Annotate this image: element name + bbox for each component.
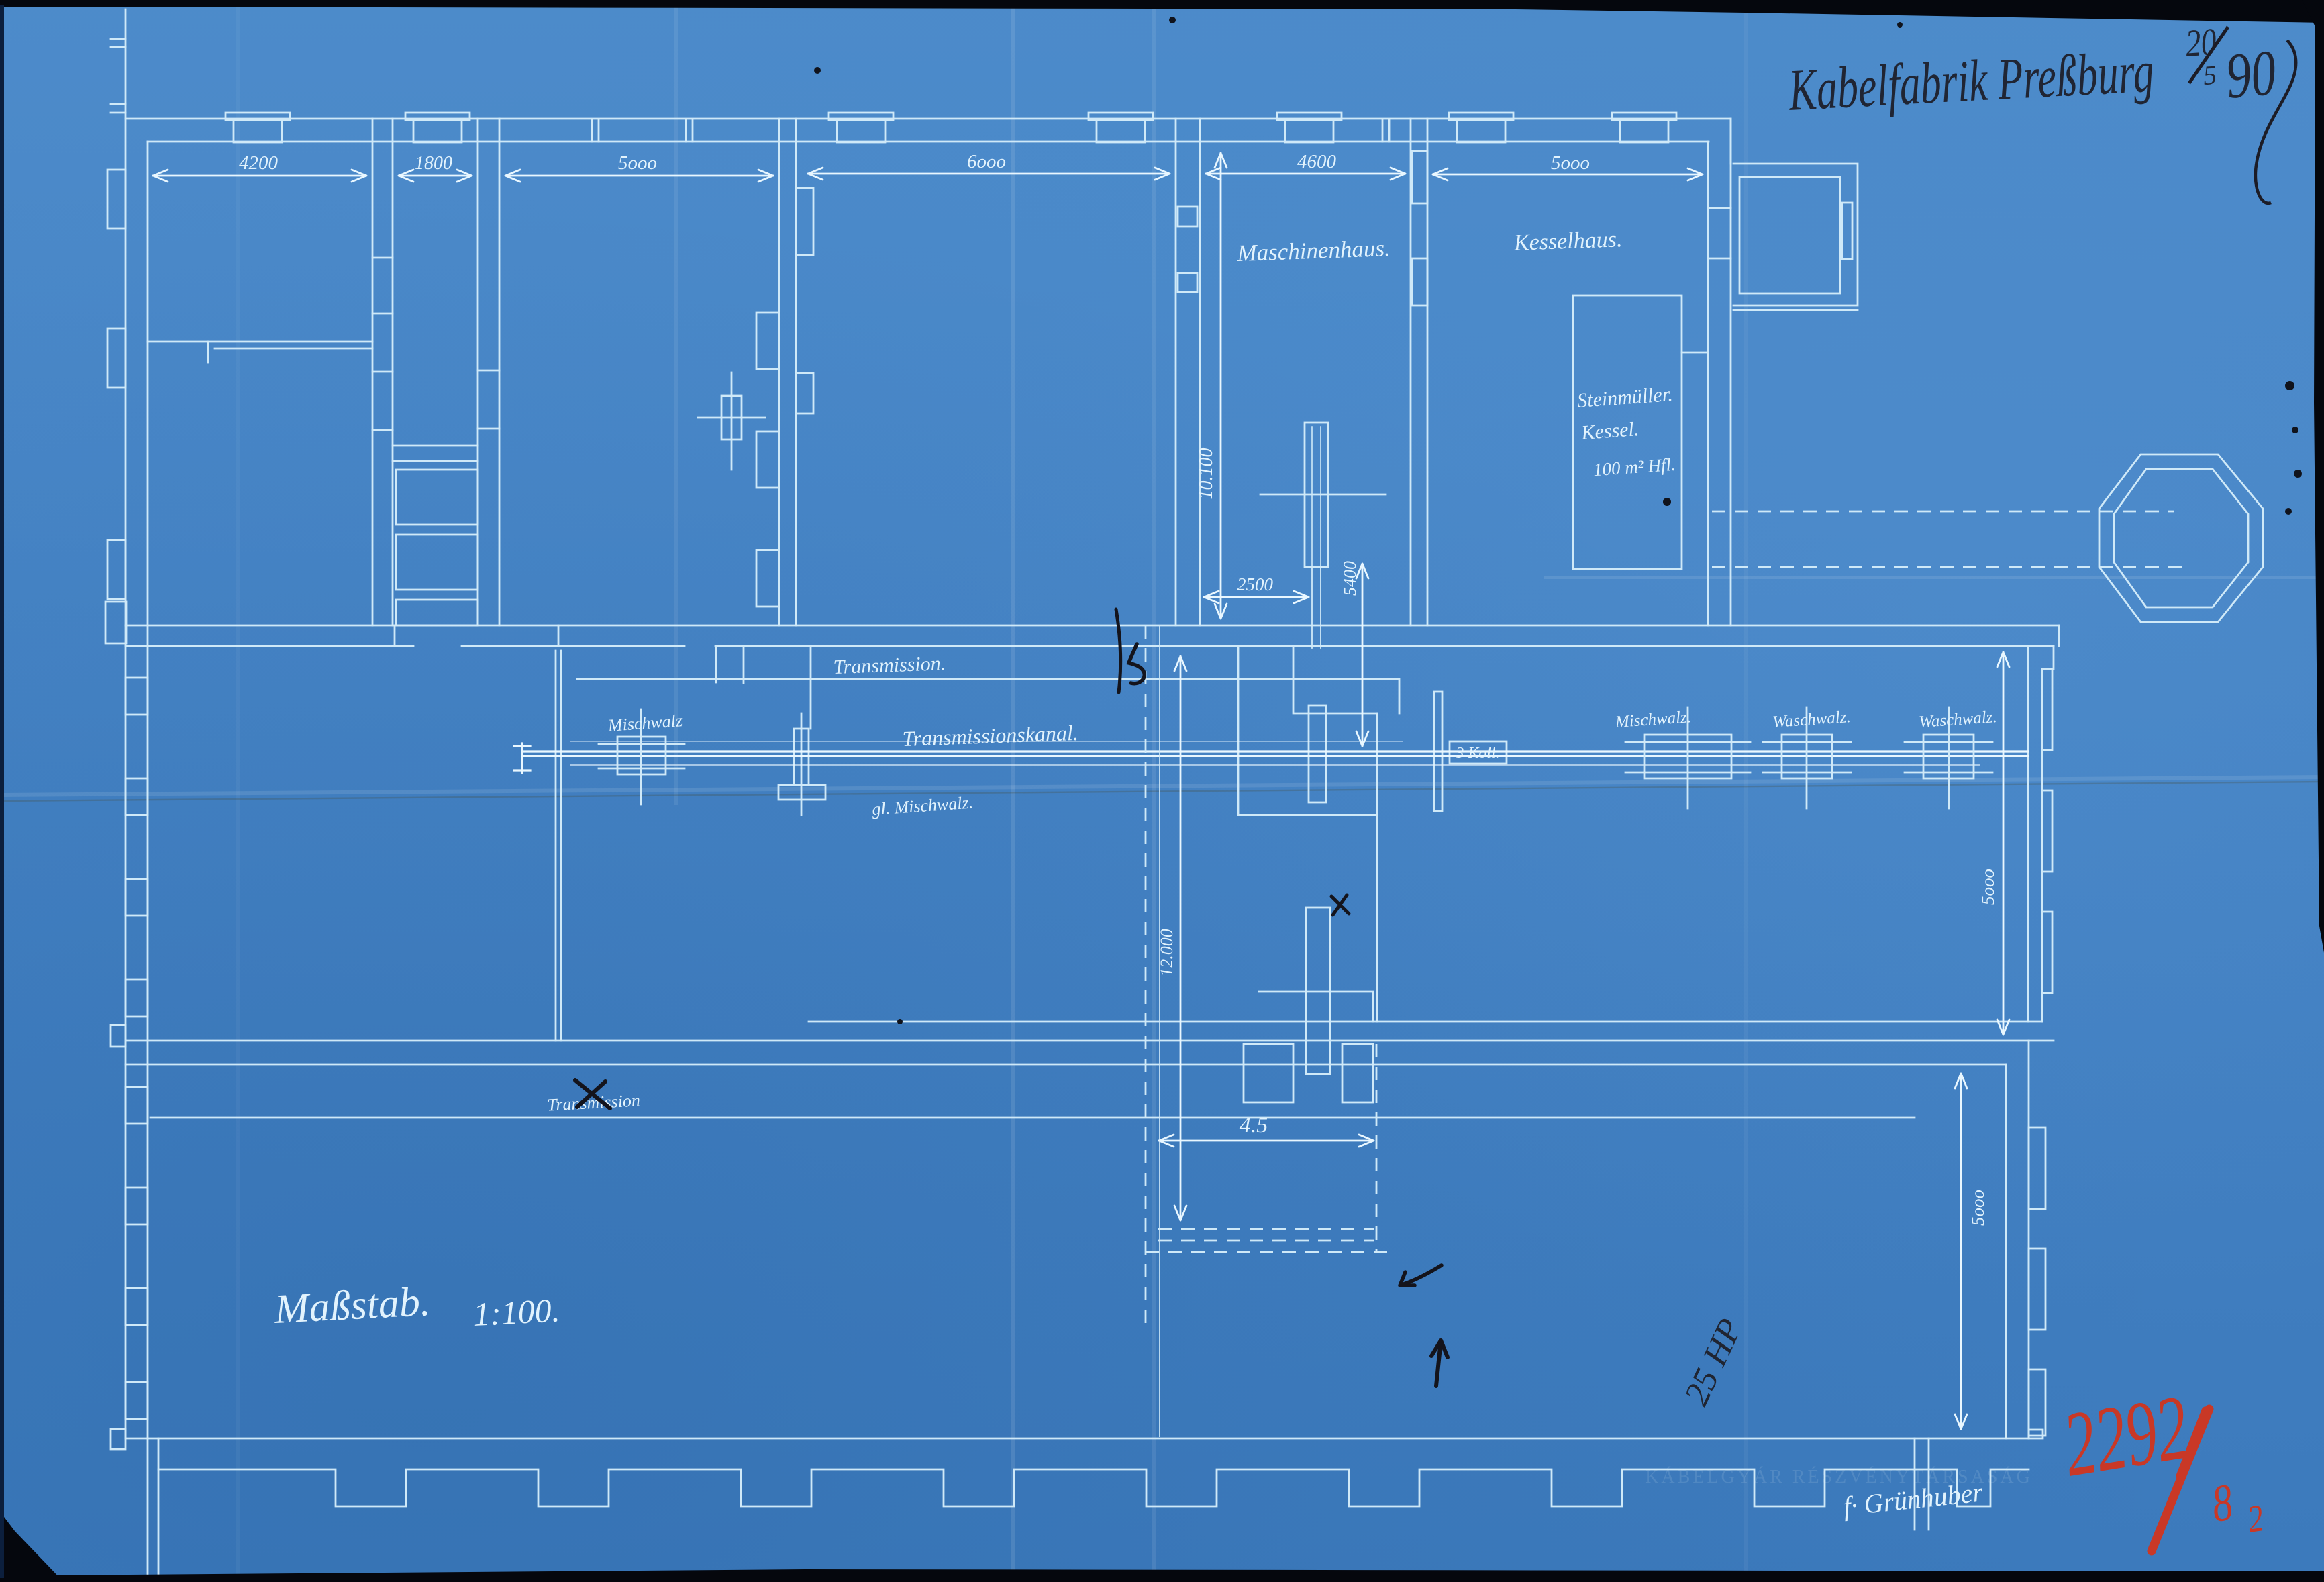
svg-text:Kessel.: Kessel. xyxy=(1580,418,1639,444)
svg-text:1800: 1800 xyxy=(415,153,452,174)
svg-text:5400: 5400 xyxy=(1340,561,1360,596)
svg-text:4.5: 4.5 xyxy=(1240,1113,1268,1138)
svg-text:Kesselhaus.: Kesselhaus. xyxy=(1513,227,1623,256)
svg-text:6ooo: 6ooo xyxy=(967,151,1006,172)
svg-text:5ooo: 5ooo xyxy=(1968,1190,1988,1226)
svg-text:Transmission.: Transmission. xyxy=(833,652,946,678)
svg-text:10.100: 10.100 xyxy=(1196,448,1217,500)
svg-text:2292: 2292 xyxy=(2057,1375,2195,1496)
svg-text:Maßstab.: Maßstab. xyxy=(272,1279,432,1332)
svg-text:4200: 4200 xyxy=(239,152,279,174)
svg-text:3 Koll.: 3 Koll. xyxy=(1455,745,1499,762)
svg-text:4600: 4600 xyxy=(1297,151,1337,172)
svg-text:2500: 2500 xyxy=(1237,574,1274,594)
svg-text:12.000: 12.000 xyxy=(1157,929,1176,977)
svg-text:5ooo: 5ooo xyxy=(618,152,657,174)
svg-text:20: 20 xyxy=(2184,21,2218,65)
svg-text:Maschinenhaus.: Maschinenhaus. xyxy=(1236,235,1391,266)
svg-text:5ooo: 5ooo xyxy=(1551,152,1590,174)
svg-text:5: 5 xyxy=(2202,60,2217,91)
svg-text:90: 90 xyxy=(2223,37,2279,113)
svg-text:1:100.: 1:100. xyxy=(472,1291,561,1333)
svg-text:5ooo: 5ooo xyxy=(1978,869,1998,905)
